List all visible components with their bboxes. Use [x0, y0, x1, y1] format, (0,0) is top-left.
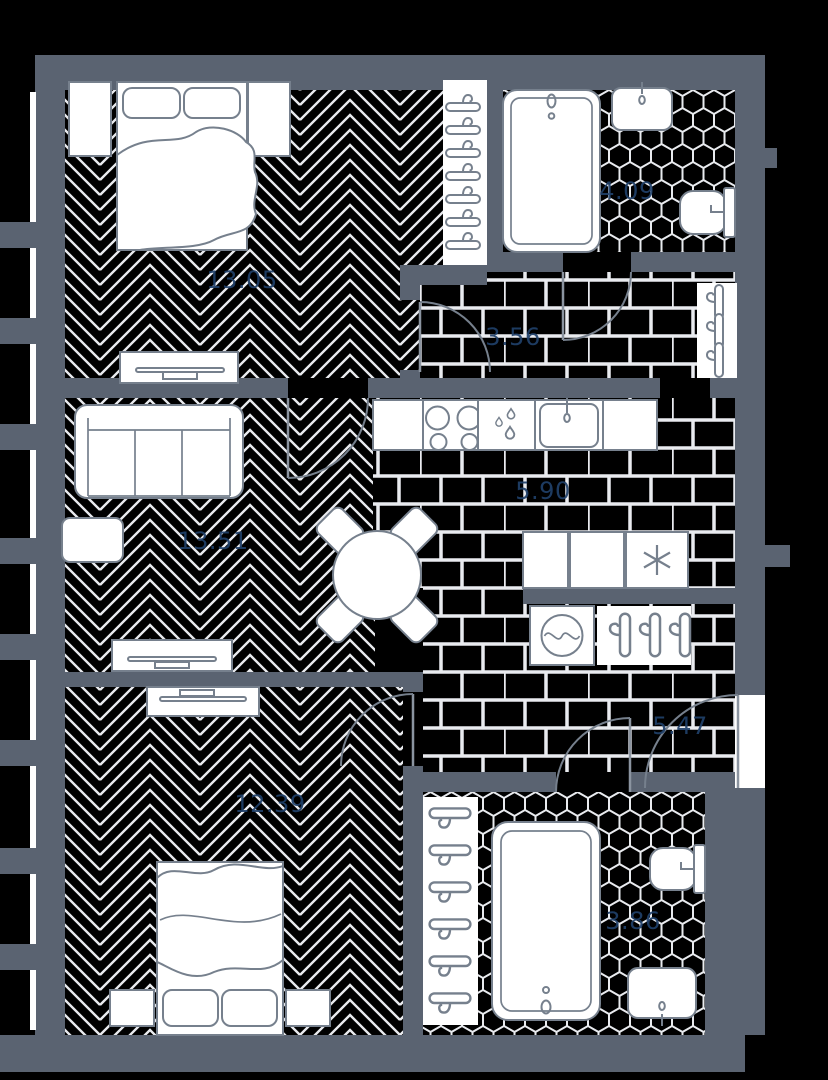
- counter-cabinet: [603, 400, 657, 450]
- cabinet: [523, 532, 568, 588]
- hanger-strip: [423, 797, 478, 1025]
- area-label-kitchen: 5.90: [515, 477, 570, 505]
- toilet-tank: [694, 845, 705, 893]
- wall-corridor-left-a: [400, 285, 420, 300]
- facade-bar: [0, 538, 38, 564]
- wall-pier-1: [735, 148, 777, 168]
- wall-bath1-bottom-b: [631, 252, 735, 272]
- wall-corridor-left-b: [400, 370, 420, 398]
- area-label-entry-corridor: 3.56: [485, 323, 540, 351]
- facade-bar: [0, 222, 38, 248]
- wall-living-bedroom2: [35, 672, 423, 687]
- floor-plan-page: 13.05 13.51 12.39 5.90 3.56 4.09 5.47 3.…: [0, 0, 828, 1080]
- entry-door-opening: [735, 695, 765, 788]
- facade-bar: [0, 740, 38, 766]
- wall-bath1-bottom-a: [487, 252, 563, 272]
- wall-kitchen-hallway: [523, 588, 735, 604]
- pillow: [184, 88, 240, 118]
- wall-bedroom2-right-a: [403, 687, 423, 692]
- area-label-living-room: 13.51: [177, 527, 248, 555]
- hallway-furniture: [530, 606, 691, 665]
- bathtub-inner: [501, 831, 591, 1011]
- toilet-tank: [724, 188, 735, 237]
- bathtub-inner: [511, 98, 592, 244]
- tv-mount: [163, 372, 197, 379]
- wall-bottom: [0, 1035, 745, 1072]
- area-label-bathroom-bottom: 3.86: [605, 907, 660, 935]
- corridor-furniture: [697, 283, 737, 378]
- tv-icon: [160, 697, 246, 701]
- kitchen-sink: [540, 404, 598, 447]
- wall-bath2-right: [705, 792, 735, 1035]
- round-dining-table: [333, 531, 421, 619]
- blanket: [117, 127, 257, 250]
- facade-bar: [0, 318, 38, 344]
- area-label-hallway: 5.47: [652, 712, 707, 740]
- facade-bar: [0, 634, 38, 660]
- wall-right-lower: [735, 788, 765, 1035]
- area-label-bedroom-bottom: 12.39: [234, 790, 305, 818]
- pillow: [163, 990, 218, 1026]
- nightstand: [248, 82, 290, 156]
- floor-plan-svg: 13.05 13.51 12.39 5.90 3.56 4.09 5.47 3.…: [0, 0, 828, 1080]
- facade-bar: [0, 848, 38, 874]
- wall-kitchen-top-b: [710, 378, 735, 398]
- floor-entry-corridor: [420, 272, 735, 378]
- tv-mount: [180, 690, 214, 696]
- wall-bath2-top-a: [403, 772, 556, 792]
- sofa: [75, 405, 243, 498]
- wash-basin: [612, 88, 672, 130]
- wall-left: [35, 55, 65, 1072]
- pillow: [222, 990, 277, 1026]
- wall-bath1-left: [487, 55, 503, 272]
- coffee-table: [62, 518, 123, 562]
- wall-bedroom2-bath2: [403, 792, 423, 1035]
- nightstand: [110, 990, 154, 1026]
- facade-bar: [0, 424, 38, 450]
- wall-pier-2: [735, 545, 790, 567]
- nightstand: [286, 990, 330, 1026]
- pillow: [123, 88, 180, 118]
- facade-bar: [0, 944, 38, 970]
- counter-cabinet: [373, 400, 423, 450]
- facade-left: [0, 90, 38, 1032]
- tv-mount: [155, 662, 189, 668]
- area-label-bedroom-top: 13.05: [206, 266, 277, 294]
- area-label-bathroom-top: 4.09: [599, 177, 654, 205]
- wall-corridor-top: [400, 265, 487, 285]
- nightstand: [69, 82, 111, 156]
- cabinet: [570, 532, 624, 588]
- tv-icon: [128, 657, 216, 661]
- wall-kitchen-top-a: [420, 378, 660, 398]
- dishwasher: [478, 400, 535, 450]
